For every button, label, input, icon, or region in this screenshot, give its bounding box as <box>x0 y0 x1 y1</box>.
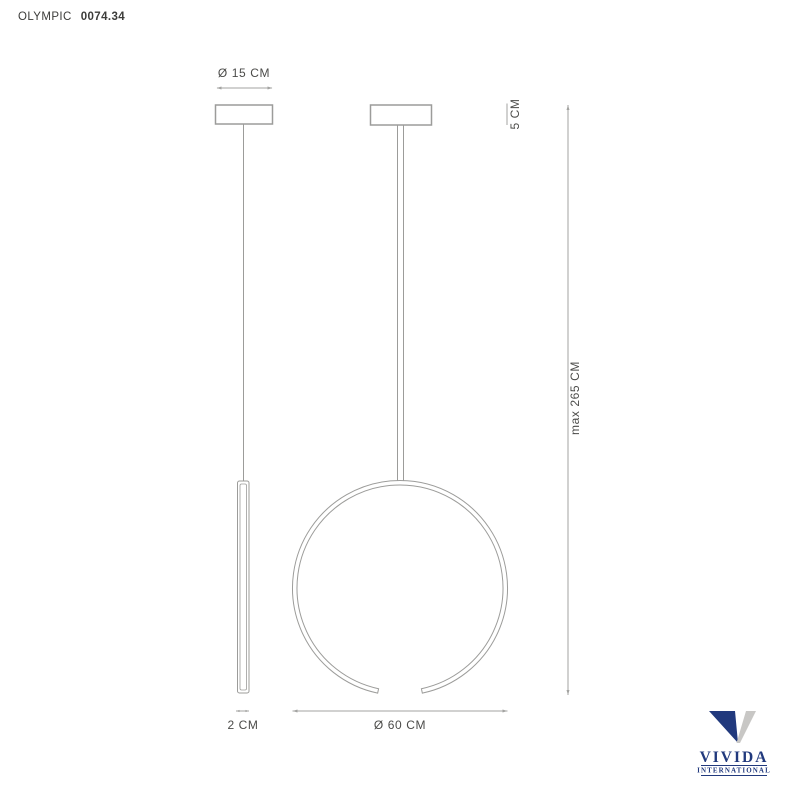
vivida-v-mark-icon <box>709 711 756 743</box>
canopy-diameter-dimension-line <box>217 87 273 90</box>
page-header: OLYMPIC0074.34 <box>18 11 125 23</box>
profile-width-label: 2 CM <box>227 718 258 732</box>
canopy-diameter-label: Ø 15 CM <box>218 66 270 80</box>
ring-diameter-label: Ø 60 CM <box>374 718 426 732</box>
logo-subtitle-text: INTERNATIONAL <box>697 767 771 775</box>
max-drop-label: max 265 CM <box>568 361 582 435</box>
canopy-height-dimension: 5 CM <box>507 98 522 129</box>
right-canopy-outline <box>371 105 432 125</box>
technical-drawing-page: OLYMPIC0074.34 Ø 15 CM <box>0 0 800 800</box>
dimension-drawing: Ø 15 CM 2 CM <box>0 0 800 800</box>
led-ring-outline <box>292 480 507 693</box>
left-canopy-outline <box>216 105 273 124</box>
side-view: Ø 15 CM 2 CM <box>216 66 273 732</box>
brand-logo: VIVIDA INTERNATIONAL <box>697 711 771 776</box>
suspension-rod <box>398 125 404 483</box>
ring-edge-profile <box>238 481 250 693</box>
front-view: Ø 60 CM <box>292 105 507 732</box>
product-code: 0074.34 <box>81 11 125 23</box>
ring-diameter-dimension-line <box>293 710 508 713</box>
max-drop-dimension: max 265 CM <box>567 105 583 695</box>
profile-width-dimension-line <box>236 710 249 712</box>
product-name: OLYMPIC <box>18 11 72 23</box>
canopy-height-label: 5 CM <box>508 98 522 129</box>
logo-brand-text: VIVIDA <box>700 749 769 766</box>
